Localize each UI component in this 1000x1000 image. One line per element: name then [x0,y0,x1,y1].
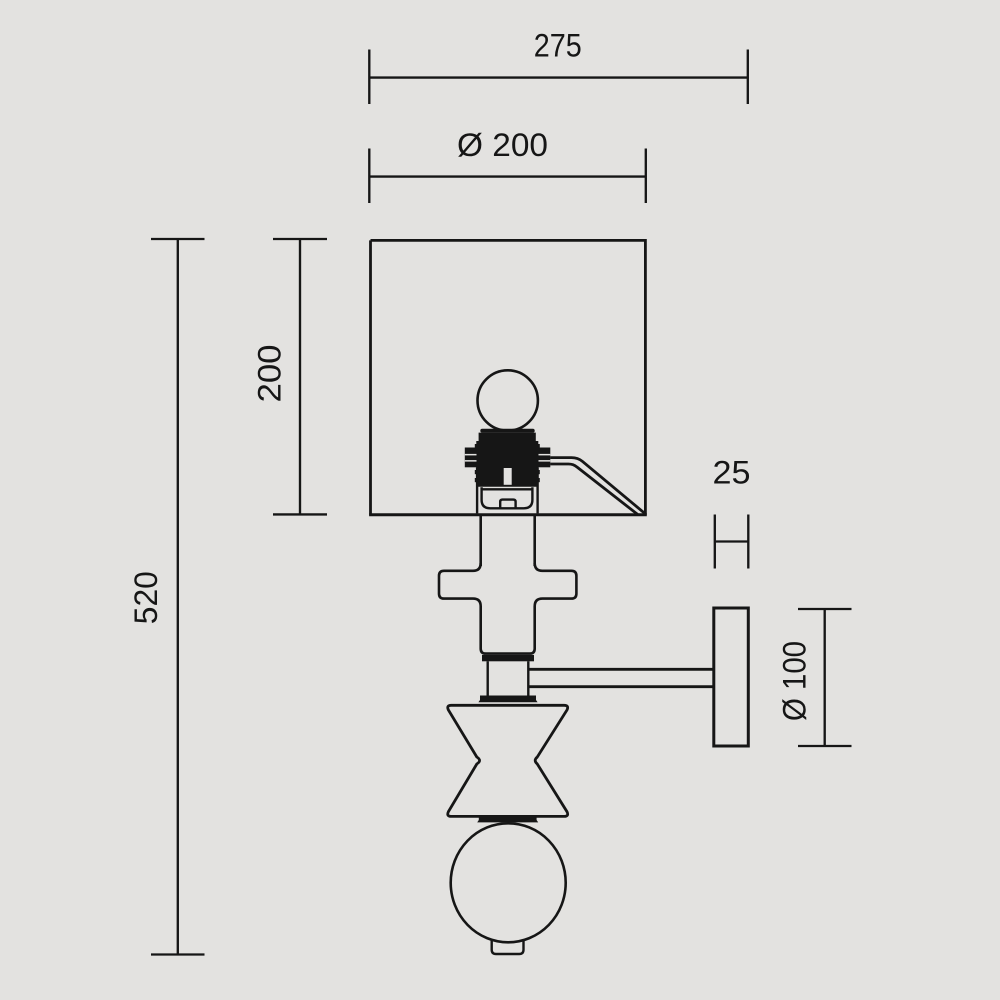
svg-text:200: 200 [252,345,288,403]
svg-text:520: 520 [128,571,164,624]
svg-text:Ø 100: Ø 100 [777,641,813,721]
svg-text:275: 275 [534,28,582,64]
svg-text:25: 25 [713,455,751,491]
svg-text:Ø 200: Ø 200 [457,127,548,163]
